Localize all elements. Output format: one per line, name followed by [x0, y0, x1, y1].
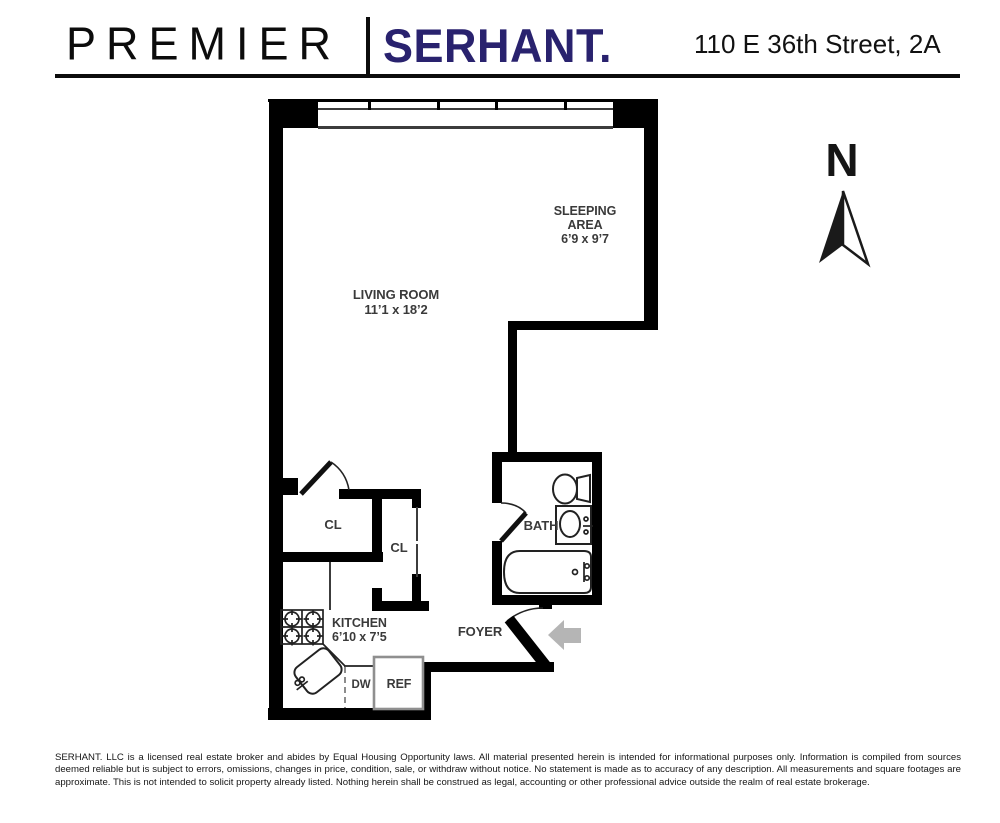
foyer-wall-bottom — [423, 662, 554, 672]
bath-wall-left-lower — [492, 541, 502, 605]
bath-wall-right — [592, 452, 602, 605]
entry-arrow-icon — [548, 620, 581, 650]
bath-wall-top — [492, 452, 602, 462]
toilet-bowl — [553, 475, 577, 504]
living-room-label: LIVING ROOM 11’1 x 18’2 — [326, 288, 466, 317]
kitchen-sink-faucet — [292, 675, 308, 689]
entry-angled-wall — [509, 619, 546, 666]
sleeping-area-label: SLEEPING AREA 6’9 x 9’7 — [530, 204, 640, 246]
brand-divider-bar — [366, 17, 370, 74]
wall-exterior-left — [269, 99, 283, 720]
listing-address: 110 E 36th Street, 2A — [694, 29, 941, 60]
wall-exterior-right — [644, 99, 658, 330]
kitchen-dimensions: 6’10 x 7’5 — [332, 630, 412, 644]
bathtub — [504, 551, 591, 593]
north-label: N — [816, 133, 868, 187]
bath-label: BATH — [514, 519, 568, 534]
living-room-name: LIVING ROOM — [326, 288, 466, 303]
header-rule — [55, 74, 960, 78]
toilet-tank — [577, 475, 590, 502]
foyer-label: FOYER — [446, 625, 514, 640]
dishwasher-label: DW — [347, 679, 375, 692]
closet-lower-label: CL — [384, 541, 414, 556]
wall-step-horizontal — [508, 321, 658, 330]
wall-sleeping-divider — [508, 321, 517, 454]
closet1-wall-bottom — [283, 552, 383, 562]
sleeping-area-dimensions: 6’9 x 9’7 — [530, 232, 640, 246]
wall-top-line — [268, 99, 658, 102]
sleeping-area-name-line2: AREA — [530, 218, 640, 232]
closet2-wall-left-stub — [372, 588, 382, 611]
window-mullion-2 — [437, 99, 440, 110]
entry-door-arc — [507, 608, 543, 621]
kitchen-counter-edge-vertical — [329, 562, 331, 610]
kitchen-counter-diagonal — [323, 644, 345, 666]
plan-graphics-overlay — [0, 0, 1000, 823]
refrigerator-label: REF — [376, 677, 422, 691]
kitchen-wall-bottom — [268, 708, 431, 720]
kitchen-label: KITCHEN 6’10 x 7’5 — [332, 616, 412, 644]
window-mullion-1 — [368, 99, 371, 110]
bath-wall-left-upper — [492, 452, 502, 503]
closet2-slider-door-lower — [416, 544, 418, 577]
closet-door-leaf — [301, 462, 331, 494]
wall-closet-door-stub — [283, 478, 298, 495]
window-sill-line — [318, 108, 613, 110]
north-arrow-icon — [819, 191, 868, 264]
sleeping-area-name-line1: SLEEPING — [530, 204, 640, 218]
bathtub-faucet — [573, 562, 590, 582]
window-mullion-4 — [564, 99, 567, 110]
kitchen-sink — [292, 645, 345, 696]
closet2-slider-door-upper — [416, 507, 418, 541]
legal-disclaimer: SERHANT. LLC is a licensed real estate b… — [55, 752, 961, 789]
closet2-wall-right-upper — [412, 489, 421, 508]
window-inner-line — [318, 126, 613, 129]
living-room-dimensions: 11’1 x 18’2 — [326, 303, 466, 318]
closet-upper-label: CL — [318, 518, 348, 533]
window-mullion-3 — [495, 99, 498, 110]
kitchen-counter-edge-horizontal — [344, 665, 375, 667]
closet-door-arc — [331, 462, 349, 490]
stove — [281, 610, 323, 646]
bath-door-stub — [539, 595, 552, 609]
bath-door-arc — [501, 503, 526, 513]
floorplan-page: PREMIER SERHANT. 110 E 36th Street, 2A — [0, 0, 1000, 823]
brand-serhant-logo: SERHANT. — [383, 19, 612, 74]
kitchen-name: KITCHEN — [332, 616, 412, 630]
brand-premier-logo: PREMIER — [66, 17, 341, 71]
